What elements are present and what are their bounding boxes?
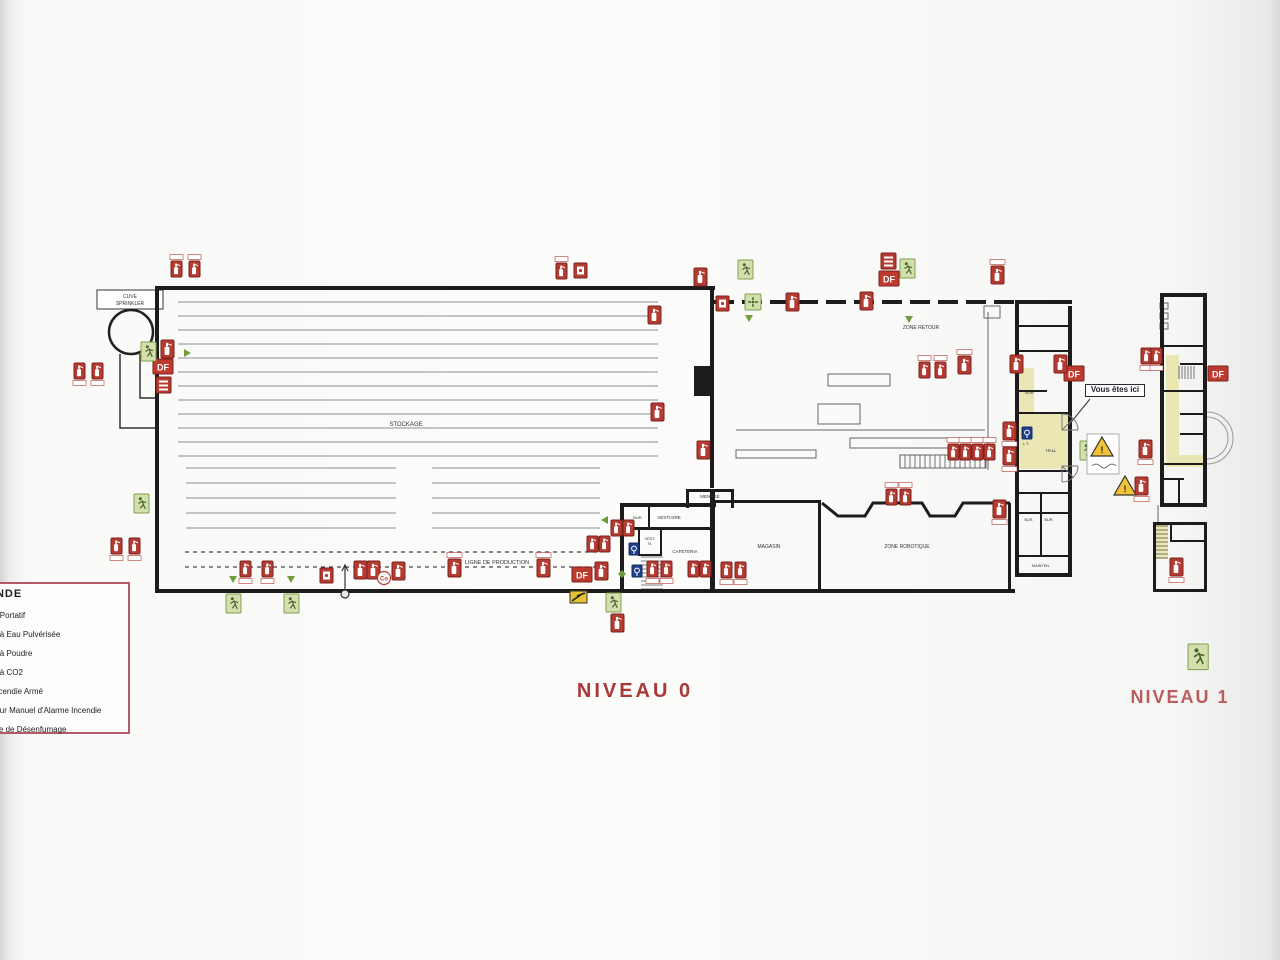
- extinguisher-icon-glyph: [995, 273, 1000, 281]
- extinguisher-icon-glyph: [1144, 443, 1146, 447]
- extinguisher-icon-glyph: [652, 313, 657, 321]
- wall: [731, 489, 734, 508]
- wall: [694, 366, 711, 396]
- extinguisher-number-tag: [959, 438, 972, 443]
- manual-alarm-icon-glyph: [721, 302, 724, 305]
- exit-icon: [1188, 644, 1208, 670]
- extinguisher-icon-glyph: [1145, 351, 1147, 354]
- extinguisher-icon-glyph: [650, 567, 654, 574]
- extinguisher-icon-glyph: [1155, 351, 1157, 354]
- extinguisher-icon-glyph: [701, 448, 706, 456]
- extinguisher-icon-glyph: [626, 526, 630, 533]
- room-label: MAINTEN.: [1032, 564, 1050, 568]
- extinguisher-number-tag: [660, 579, 673, 584]
- highlight-area: [1018, 413, 1068, 469]
- extinguisher-icon-glyph: [265, 567, 269, 574]
- exit-icon-glyph: [139, 497, 142, 500]
- legend: LÉGENDE Extincteur PortatifExtincteur à …: [0, 582, 130, 734]
- extinguisher-icon-glyph: [702, 444, 704, 448]
- room-label: ZONE ROBOTIQUE: [884, 544, 930, 550]
- wall: [1153, 522, 1207, 525]
- extinguisher-icon-glyph: [656, 406, 658, 410]
- exit-icon: [284, 594, 299, 613]
- extinguisher-number-tag: [992, 520, 1007, 525]
- extinguisher-icon-glyph: [724, 568, 728, 575]
- exit-icon: [606, 593, 621, 612]
- wall: [1019, 412, 1068, 414]
- extinguisher-icon-glyph: [541, 566, 546, 574]
- extinguisher-icon-glyph: [1174, 565, 1179, 573]
- extinguisher-icon-glyph: [691, 567, 695, 574]
- extinguisher-number-tag: [73, 381, 86, 386]
- legend-item: Déclencheur Manuel d'Alarme Incendie: [0, 701, 124, 720]
- vent-icon-glyph: [884, 257, 893, 259]
- extinguisher-icon-glyph: [890, 492, 892, 495]
- vent-icon-glyph: [159, 381, 168, 383]
- extinguisher-icon-glyph: [996, 269, 998, 273]
- extinguisher-icon-glyph: [600, 565, 602, 569]
- wall: [1068, 306, 1072, 577]
- wall: [715, 500, 774, 503]
- extinguisher-icon-glyph: [359, 564, 361, 568]
- extinguisher-icon-glyph: [397, 565, 399, 569]
- extinguisher-icon-glyph: [1007, 429, 1012, 437]
- df-label: DF: [1068, 370, 1080, 380]
- exit-icon: [141, 342, 156, 361]
- extinguisher-icon-glyph: [699, 271, 701, 275]
- extinguisher-number-tag: [720, 580, 733, 585]
- highlight-area: [1166, 366, 1180, 380]
- wall: [686, 489, 689, 508]
- exit-icon: [900, 259, 915, 278]
- extinguisher-icon-glyph: [704, 564, 706, 567]
- extinguisher-icon-glyph: [651, 564, 653, 567]
- extinguisher-icon-glyph: [923, 365, 925, 368]
- extinguisher-number-tag: [1138, 460, 1153, 465]
- wall: [648, 506, 650, 527]
- wall: [1019, 325, 1068, 327]
- extinguisher-number-tag: [934, 356, 947, 361]
- extinguisher-icon-glyph: [542, 562, 544, 566]
- wall: [1180, 413, 1205, 415]
- legend-item: Robinet Incendie Armé: [0, 682, 124, 701]
- df-label: DF: [157, 363, 169, 373]
- extinguisher-icon-glyph: [614, 526, 618, 533]
- extinguisher-number-tag: [110, 556, 123, 561]
- extinguisher-icon-glyph: [243, 567, 247, 574]
- legend-item: Extincteur à Eau Pulvérisée: [0, 625, 124, 644]
- extinguisher-icon-glyph: [1059, 358, 1061, 362]
- floor-plan-svg: STOCKAGEZONE RETOURLIGNE DE PRODUCTIONMA…: [0, 0, 1280, 960]
- wall: [1019, 555, 1068, 557]
- exit-icon-glyph: [611, 596, 614, 599]
- extinguisher-icon-glyph: [591, 539, 593, 542]
- extinguisher-icon-glyph: [987, 450, 991, 457]
- room-label: BUR.: [1044, 518, 1053, 522]
- extinguisher-icon-glyph: [1058, 362, 1063, 370]
- direction-arrow-right-icon: [184, 349, 191, 357]
- wall: [1203, 293, 1207, 507]
- extinguisher-icon-glyph: [951, 450, 955, 457]
- extinguisher-icon-glyph: [975, 450, 979, 457]
- extinguisher-icon-glyph: [962, 363, 967, 371]
- extinguisher-icon-glyph: [922, 368, 926, 375]
- extinguisher-number-tag: [1002, 442, 1017, 447]
- extinguisher-number-tag: [947, 438, 960, 443]
- extinguisher-icon-glyph: [175, 264, 177, 267]
- extinguisher-icon-glyph: [938, 368, 942, 375]
- wall: [622, 527, 714, 530]
- room-label: LIGNE DE PRODUCTION: [465, 560, 529, 566]
- extinguisher-icon-glyph: [358, 568, 363, 576]
- legend-item: Extincteur Portatif: [0, 606, 124, 625]
- extinguisher-icon-glyph: [1015, 358, 1017, 362]
- room-label: SPRINKLER: [116, 301, 145, 307]
- wall: [1019, 470, 1068, 472]
- exit-icon-glyph: [743, 263, 746, 266]
- plan-path: [120, 354, 155, 428]
- room-label: BUR.: [1024, 518, 1033, 522]
- extinguisher-icon-glyph: [192, 267, 196, 274]
- wall: [1170, 540, 1207, 542]
- room-label: STOCKAGE: [389, 422, 422, 428]
- room-label: BUR.: [633, 515, 643, 520]
- extinguisher-number-tag: [734, 580, 747, 585]
- evacuation-plan-photo: STOCKAGEZONE RETOURLIGNE DE PRODUCTIONMA…: [0, 0, 1280, 960]
- extinguisher-number-tag: [91, 381, 104, 386]
- wall: [1160, 503, 1207, 507]
- co2-icon-label: Co: [380, 577, 388, 583]
- wall: [1015, 573, 1072, 577]
- legend-item: Commande de Désenfumage: [0, 720, 124, 739]
- extinguisher-icon-glyph: [627, 523, 629, 526]
- extinguisher-icon-glyph: [95, 369, 99, 376]
- extinguisher-icon-glyph: [615, 621, 620, 629]
- extinguisher-icon-glyph: [904, 492, 906, 495]
- highlight-area: [1179, 455, 1203, 467]
- extinguisher-icon-glyph: [964, 447, 966, 450]
- extinguisher-icon-glyph: [396, 569, 401, 577]
- extinguisher-icon-glyph: [739, 565, 741, 568]
- extinguisher-number-tag: [447, 553, 462, 558]
- df-label: DF: [883, 275, 895, 285]
- direction-diamond-icon: [618, 570, 626, 578]
- extinguisher-icon-glyph: [453, 562, 455, 566]
- wall: [1164, 463, 1205, 465]
- extinguisher-icon-glyph: [1140, 480, 1142, 484]
- extinguisher-icon-glyph: [1007, 454, 1012, 462]
- wall: [620, 503, 624, 593]
- extinguisher-number-tag: [957, 350, 972, 355]
- wall: [1164, 478, 1184, 480]
- warning-triangle-icon-glyph: !: [1124, 484, 1127, 494]
- vent-icon-glyph: [884, 261, 893, 263]
- direction-arrow-down-icon: [287, 576, 295, 583]
- extinguisher-number-tag: [971, 438, 984, 443]
- exit-icon-glyph: [146, 345, 149, 348]
- extinguisher-icon-glyph: [1144, 354, 1148, 361]
- niveau0-title: NIVEAU 0: [560, 680, 710, 703]
- zigzag-wall: [822, 503, 1010, 516]
- extinguisher-icon-glyph: [244, 564, 246, 567]
- wall: [660, 530, 662, 556]
- room-label: CUVE: [123, 294, 138, 300]
- extinguisher-number-tag: [536, 553, 551, 558]
- extinguisher-number-tag: [170, 255, 183, 260]
- extinguisher-icon-glyph: [963, 359, 965, 363]
- extinguisher-number-tag: [1134, 497, 1149, 502]
- extinguisher-icon-glyph: [865, 295, 867, 299]
- extinguisher-number-tag: [1169, 578, 1184, 583]
- extinguisher-icon-glyph: [599, 569, 604, 577]
- room-label: VESTIAIRE: [657, 515, 681, 520]
- extinguisher-number-tag: [983, 438, 996, 443]
- extinguisher-icon-glyph: [1175, 561, 1177, 565]
- legend-item: Extincteur à Poudre: [0, 644, 124, 663]
- room-label: ZONE RETOUR: [903, 325, 940, 331]
- wall: [1180, 363, 1207, 365]
- wall: [1160, 293, 1164, 507]
- extinguisher-icon-glyph: [372, 564, 374, 568]
- assembly-point-icon-glyph: [752, 301, 755, 304]
- wall: [155, 286, 159, 593]
- plan-path: [1207, 412, 1233, 464]
- extinguisher-number-tag: [1150, 366, 1163, 371]
- exit-icon: [134, 494, 149, 513]
- extinguisher-icon-glyph: [665, 564, 667, 567]
- extinguisher-number-tag: [555, 257, 568, 262]
- extinguisher-number-tag: [128, 556, 141, 561]
- extinguisher-icon-glyph: [266, 564, 268, 567]
- warning-triangle-icon-glyph: !: [1101, 445, 1104, 455]
- vent-icon-glyph: [159, 389, 168, 391]
- legend-title: LÉGENDE: [0, 588, 124, 600]
- exit-icon-glyph: [289, 597, 292, 600]
- extinguisher-number-tag: [188, 255, 201, 260]
- wall: [710, 489, 715, 593]
- room-label: CAFETERIA: [672, 549, 697, 554]
- extinguisher-icon-glyph: [1008, 450, 1010, 454]
- direction-arrow-left-icon: [601, 516, 608, 524]
- room-label: L.T.: [1023, 442, 1029, 446]
- extinguisher-icon-glyph: [903, 495, 907, 502]
- extinguisher-icon-glyph: [132, 544, 136, 551]
- wall: [1019, 492, 1068, 494]
- plan-path: [1207, 417, 1228, 459]
- extinguisher-icon-glyph: [791, 296, 793, 300]
- extinguisher-icon-glyph: [371, 568, 376, 576]
- wall: [1019, 512, 1068, 514]
- wall: [1160, 293, 1207, 297]
- extinguisher-icon-glyph: [976, 447, 978, 450]
- direction-arrow-down-icon: [905, 316, 913, 323]
- extinguisher-icon-glyph: [615, 523, 617, 526]
- extinguisher-icon-glyph: [560, 266, 562, 269]
- manual-alarm-icon-glyph: [579, 269, 582, 272]
- extinguisher-icon-glyph: [559, 269, 563, 276]
- wall: [1180, 433, 1205, 435]
- extinguisher-icon-glyph: [703, 567, 707, 574]
- wall: [620, 503, 716, 507]
- extinguisher-icon-glyph: [1143, 447, 1148, 455]
- df-label: DF: [1212, 370, 1224, 380]
- room-label: N.: [648, 542, 652, 546]
- exit-icon: [226, 594, 241, 613]
- wall: [1153, 589, 1207, 592]
- extinguisher-icon-glyph: [166, 343, 168, 347]
- extinguisher-icon-glyph: [1139, 484, 1144, 492]
- room-label: VEST.: [645, 537, 656, 541]
- extinguisher-icon-glyph: [616, 617, 618, 621]
- extinguisher-icon-glyph: [692, 564, 694, 567]
- wall: [1153, 522, 1156, 592]
- extinguisher-icon-glyph: [115, 541, 117, 544]
- extinguisher-icon-glyph: [738, 568, 742, 575]
- extinguisher-icon-glyph: [952, 447, 954, 450]
- exit-icon: [738, 260, 753, 279]
- extinguisher-icon-glyph: [590, 542, 594, 549]
- extinguisher-icon-glyph: [864, 299, 869, 307]
- extinguisher-icon-glyph: [889, 495, 893, 502]
- extinguisher-icon-glyph: [114, 544, 118, 551]
- extinguisher-icon-glyph: [698, 275, 703, 283]
- wall: [1204, 522, 1207, 592]
- wall: [1164, 345, 1205, 347]
- extinguisher-number-tag: [646, 579, 659, 584]
- equipment-outline: [736, 450, 816, 458]
- extinguisher-icon-glyph: [174, 267, 178, 274]
- extinguisher-icon-glyph: [603, 539, 605, 542]
- extinguisher-number-tag: [899, 483, 912, 488]
- vent-icon-glyph: [159, 385, 168, 387]
- extinguisher-icon-glyph: [998, 503, 1000, 507]
- wall: [1170, 522, 1172, 542]
- extinguisher-icon-glyph: [963, 450, 967, 457]
- extinguisher-icon-glyph: [725, 565, 727, 568]
- exit-icon-glyph: [905, 262, 908, 265]
- room-label: BUR.: [1025, 390, 1035, 395]
- extinguisher-number-tag: [918, 356, 931, 361]
- wall: [686, 489, 734, 492]
- equipment-outline: [828, 374, 890, 386]
- direction-arrow-down-icon: [745, 315, 753, 322]
- extinguisher-icon-glyph: [997, 507, 1002, 515]
- hydrant-icon: [341, 590, 349, 598]
- wall: [818, 500, 821, 592]
- wall: [1040, 492, 1042, 555]
- equipment-outline: [984, 306, 1000, 318]
- df-label: DF: [576, 571, 588, 581]
- room-label: MENAGE: [700, 494, 720, 499]
- room-label: MAGASIN: [757, 544, 780, 550]
- extinguisher-icon-glyph: [165, 347, 170, 355]
- extinguisher-icon-glyph: [653, 309, 655, 313]
- wall: [155, 286, 715, 290]
- extinguisher-icon-glyph: [664, 567, 668, 574]
- you-are-here-callout: Vous êtes ici: [1085, 384, 1145, 397]
- wall: [1019, 350, 1068, 352]
- extinguisher-icon-glyph: [655, 410, 660, 418]
- extinguisher-icon-glyph: [790, 300, 795, 308]
- wall: [1015, 300, 1072, 304]
- extinguisher-icon-glyph: [602, 542, 606, 549]
- wall: [1164, 390, 1205, 392]
- extinguisher-number-tag: [239, 579, 252, 584]
- extinguisher-number-tag: [261, 579, 274, 584]
- extinguisher-icon-glyph: [939, 365, 941, 368]
- extinguisher-icon-glyph: [193, 264, 195, 267]
- extinguisher-icon-glyph: [1154, 354, 1158, 361]
- legend-item-list: Extincteur PortatifExtincteur à Eau Pulv…: [0, 606, 124, 739]
- extinguisher-number-tag: [990, 260, 1005, 265]
- extinguisher-icon-glyph: [1008, 425, 1010, 429]
- extinguisher-number-tag: [885, 483, 898, 488]
- exit-icon-glyph: [1194, 648, 1198, 652]
- direction-arrow-down-icon: [229, 576, 237, 583]
- extinguisher-icon-glyph: [78, 366, 80, 369]
- wall: [1178, 478, 1180, 505]
- exit-icon-glyph: [231, 597, 234, 600]
- extinguisher-icon-glyph: [96, 366, 98, 369]
- manual-alarm-icon-glyph: [325, 574, 328, 577]
- niveau1-title: NIVEAU 1: [1120, 687, 1240, 708]
- room-label: HALL: [1046, 448, 1057, 453]
- wall: [638, 554, 662, 556]
- extinguisher-icon-glyph: [77, 369, 81, 376]
- wall: [772, 500, 821, 503]
- extinguisher-icon-glyph: [1014, 362, 1019, 370]
- extinguisher-icon-glyph: [452, 566, 457, 574]
- wall: [1008, 503, 1011, 591]
- vent-icon-glyph: [884, 265, 893, 267]
- extinguisher-icon-glyph: [133, 541, 135, 544]
- extinguisher-icon-glyph: [988, 447, 990, 450]
- equipment-outline: [818, 404, 860, 424]
- extinguisher-number-tag: [1002, 467, 1017, 472]
- legend-item: Extincteur à CO2: [0, 663, 124, 682]
